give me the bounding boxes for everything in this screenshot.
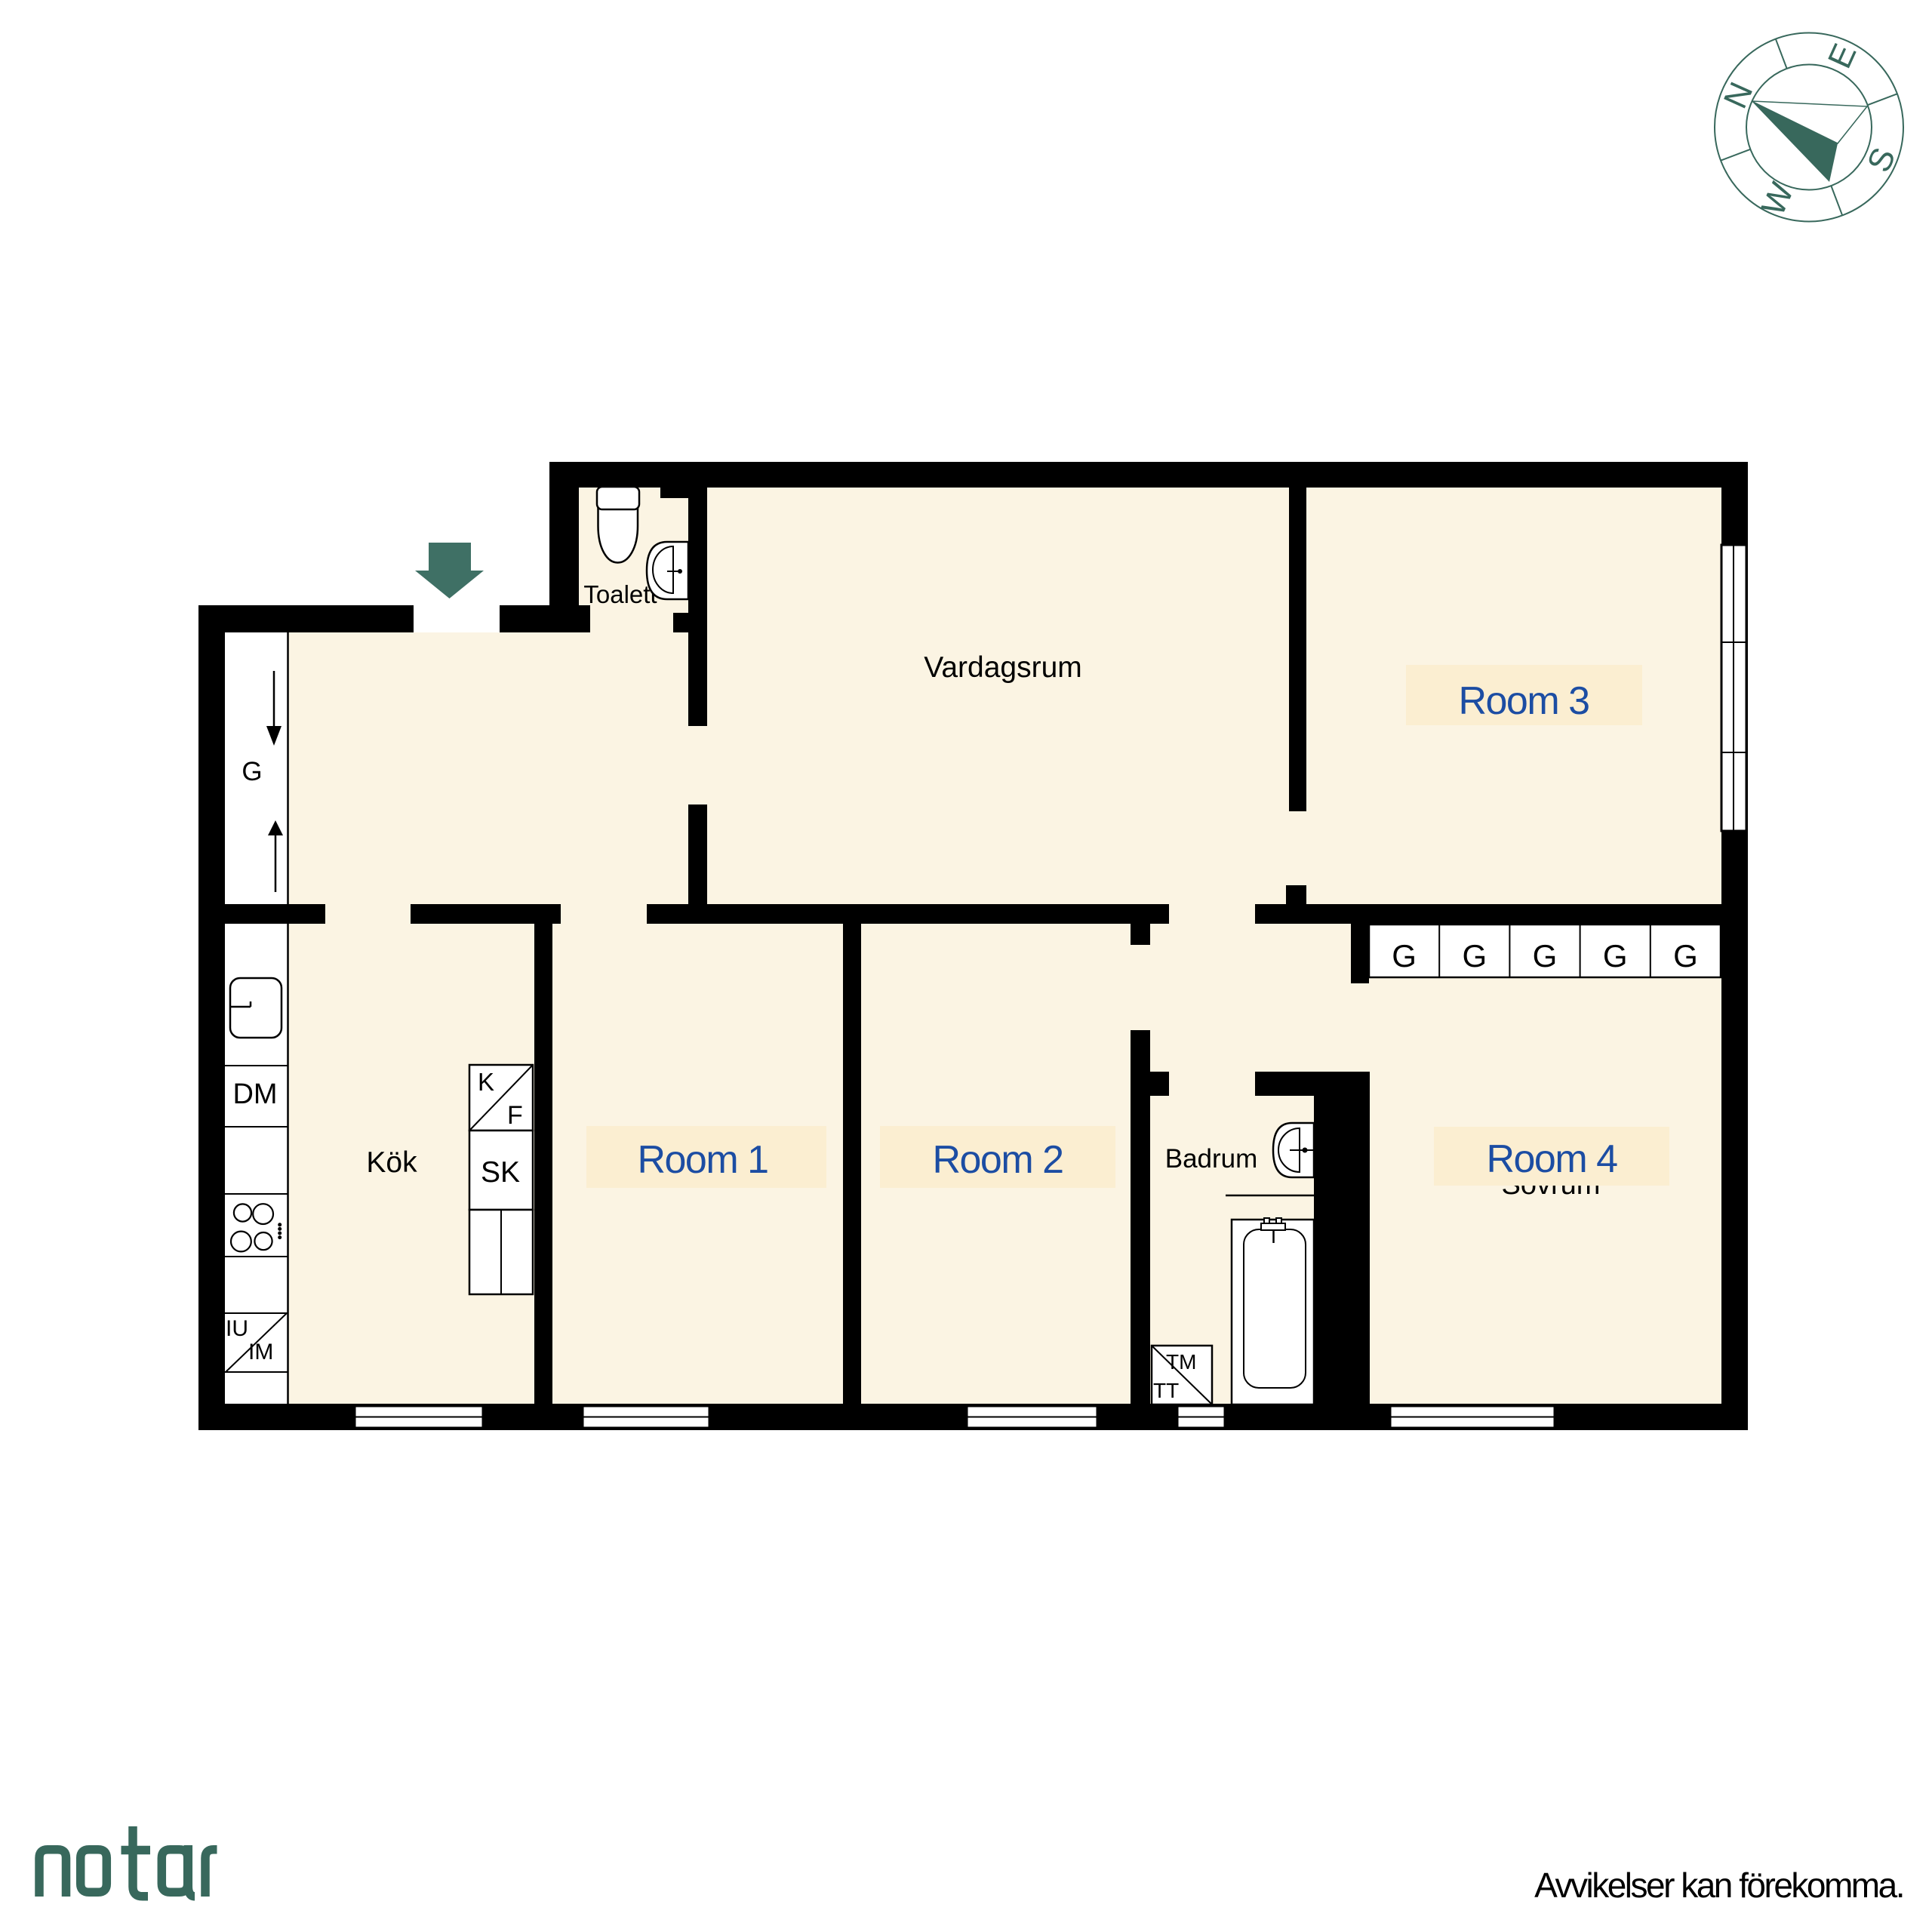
svg-text:Room 3: Room 3: [1458, 679, 1589, 723]
svg-text:IU: IU: [226, 1316, 248, 1341]
svg-text:IM: IM: [248, 1340, 273, 1364]
svg-text:G: G: [1533, 938, 1558, 974]
svg-text:K: K: [478, 1068, 494, 1096]
svg-text:TM: TM: [1166, 1350, 1196, 1374]
svg-text:Avvikelser kan förekomma.: Avvikelser kan förekomma.: [1534, 1866, 1903, 1905]
svg-text:G: G: [1603, 938, 1628, 974]
svg-text:G: G: [241, 757, 262, 786]
svg-text:Badrum: Badrum: [1165, 1144, 1258, 1174]
svg-text:Room 2: Room 2: [932, 1138, 1063, 1182]
svg-text:Room 1: Room 1: [637, 1138, 768, 1182]
svg-text:G: G: [1673, 938, 1698, 974]
svg-text:F: F: [507, 1101, 523, 1130]
svg-text:SK: SK: [481, 1156, 520, 1189]
svg-text:G: G: [1462, 938, 1487, 974]
svg-text:G: G: [1392, 938, 1417, 974]
svg-text:Toalett: Toalett: [583, 580, 657, 608]
svg-text:Vardagsrum: Vardagsrum: [924, 651, 1082, 684]
svg-text:DM: DM: [232, 1078, 277, 1110]
svg-text:Room 4: Room 4: [1486, 1137, 1617, 1181]
svg-text:TT: TT: [1153, 1379, 1179, 1402]
svg-text:Kök: Kök: [366, 1146, 417, 1179]
